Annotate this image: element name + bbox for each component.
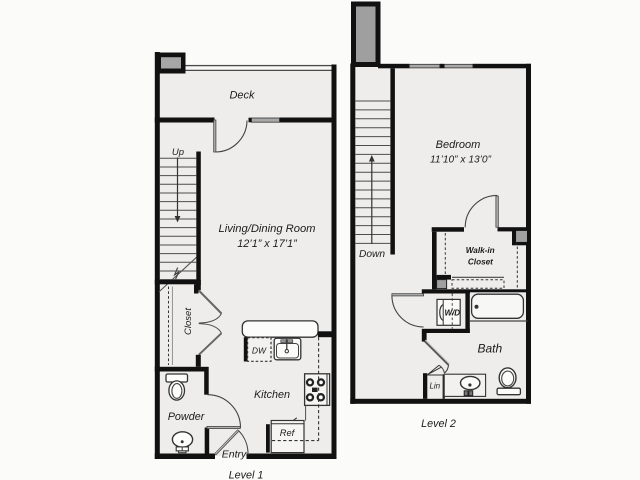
svg-text:Deck: Deck [229,90,255,102]
svg-text:Bath: Bath [477,342,502,356]
svg-text:Ref: Ref [280,428,296,438]
svg-text:Closet: Closet [468,257,493,266]
svg-text:Kitchen: Kitchen [254,389,290,401]
svg-text:Level 1: Level 1 [229,469,264,480]
svg-text:Level 2: Level 2 [421,418,456,430]
svg-text:DW: DW [252,346,267,356]
svg-text:12’1” x 17’1”: 12’1” x 17’1” [237,238,297,250]
svg-text:Powder: Powder [168,411,205,423]
svg-text:Living/Dining Room: Living/Dining Room [218,223,315,235]
svg-text:Bedroom: Bedroom [436,139,481,151]
svg-text:Lin: Lin [429,381,440,390]
svg-text:Closet: Closet [183,308,194,335]
svg-text:Up: Up [172,147,184,158]
svg-text:11’10” x 13’0”: 11’10” x 13’0” [430,154,492,165]
svg-text:W/D: W/D [445,309,461,318]
svg-text:Down: Down [359,249,385,260]
svg-text:Entry: Entry [222,448,247,460]
svg-text:Walk-in: Walk-in [466,246,495,255]
